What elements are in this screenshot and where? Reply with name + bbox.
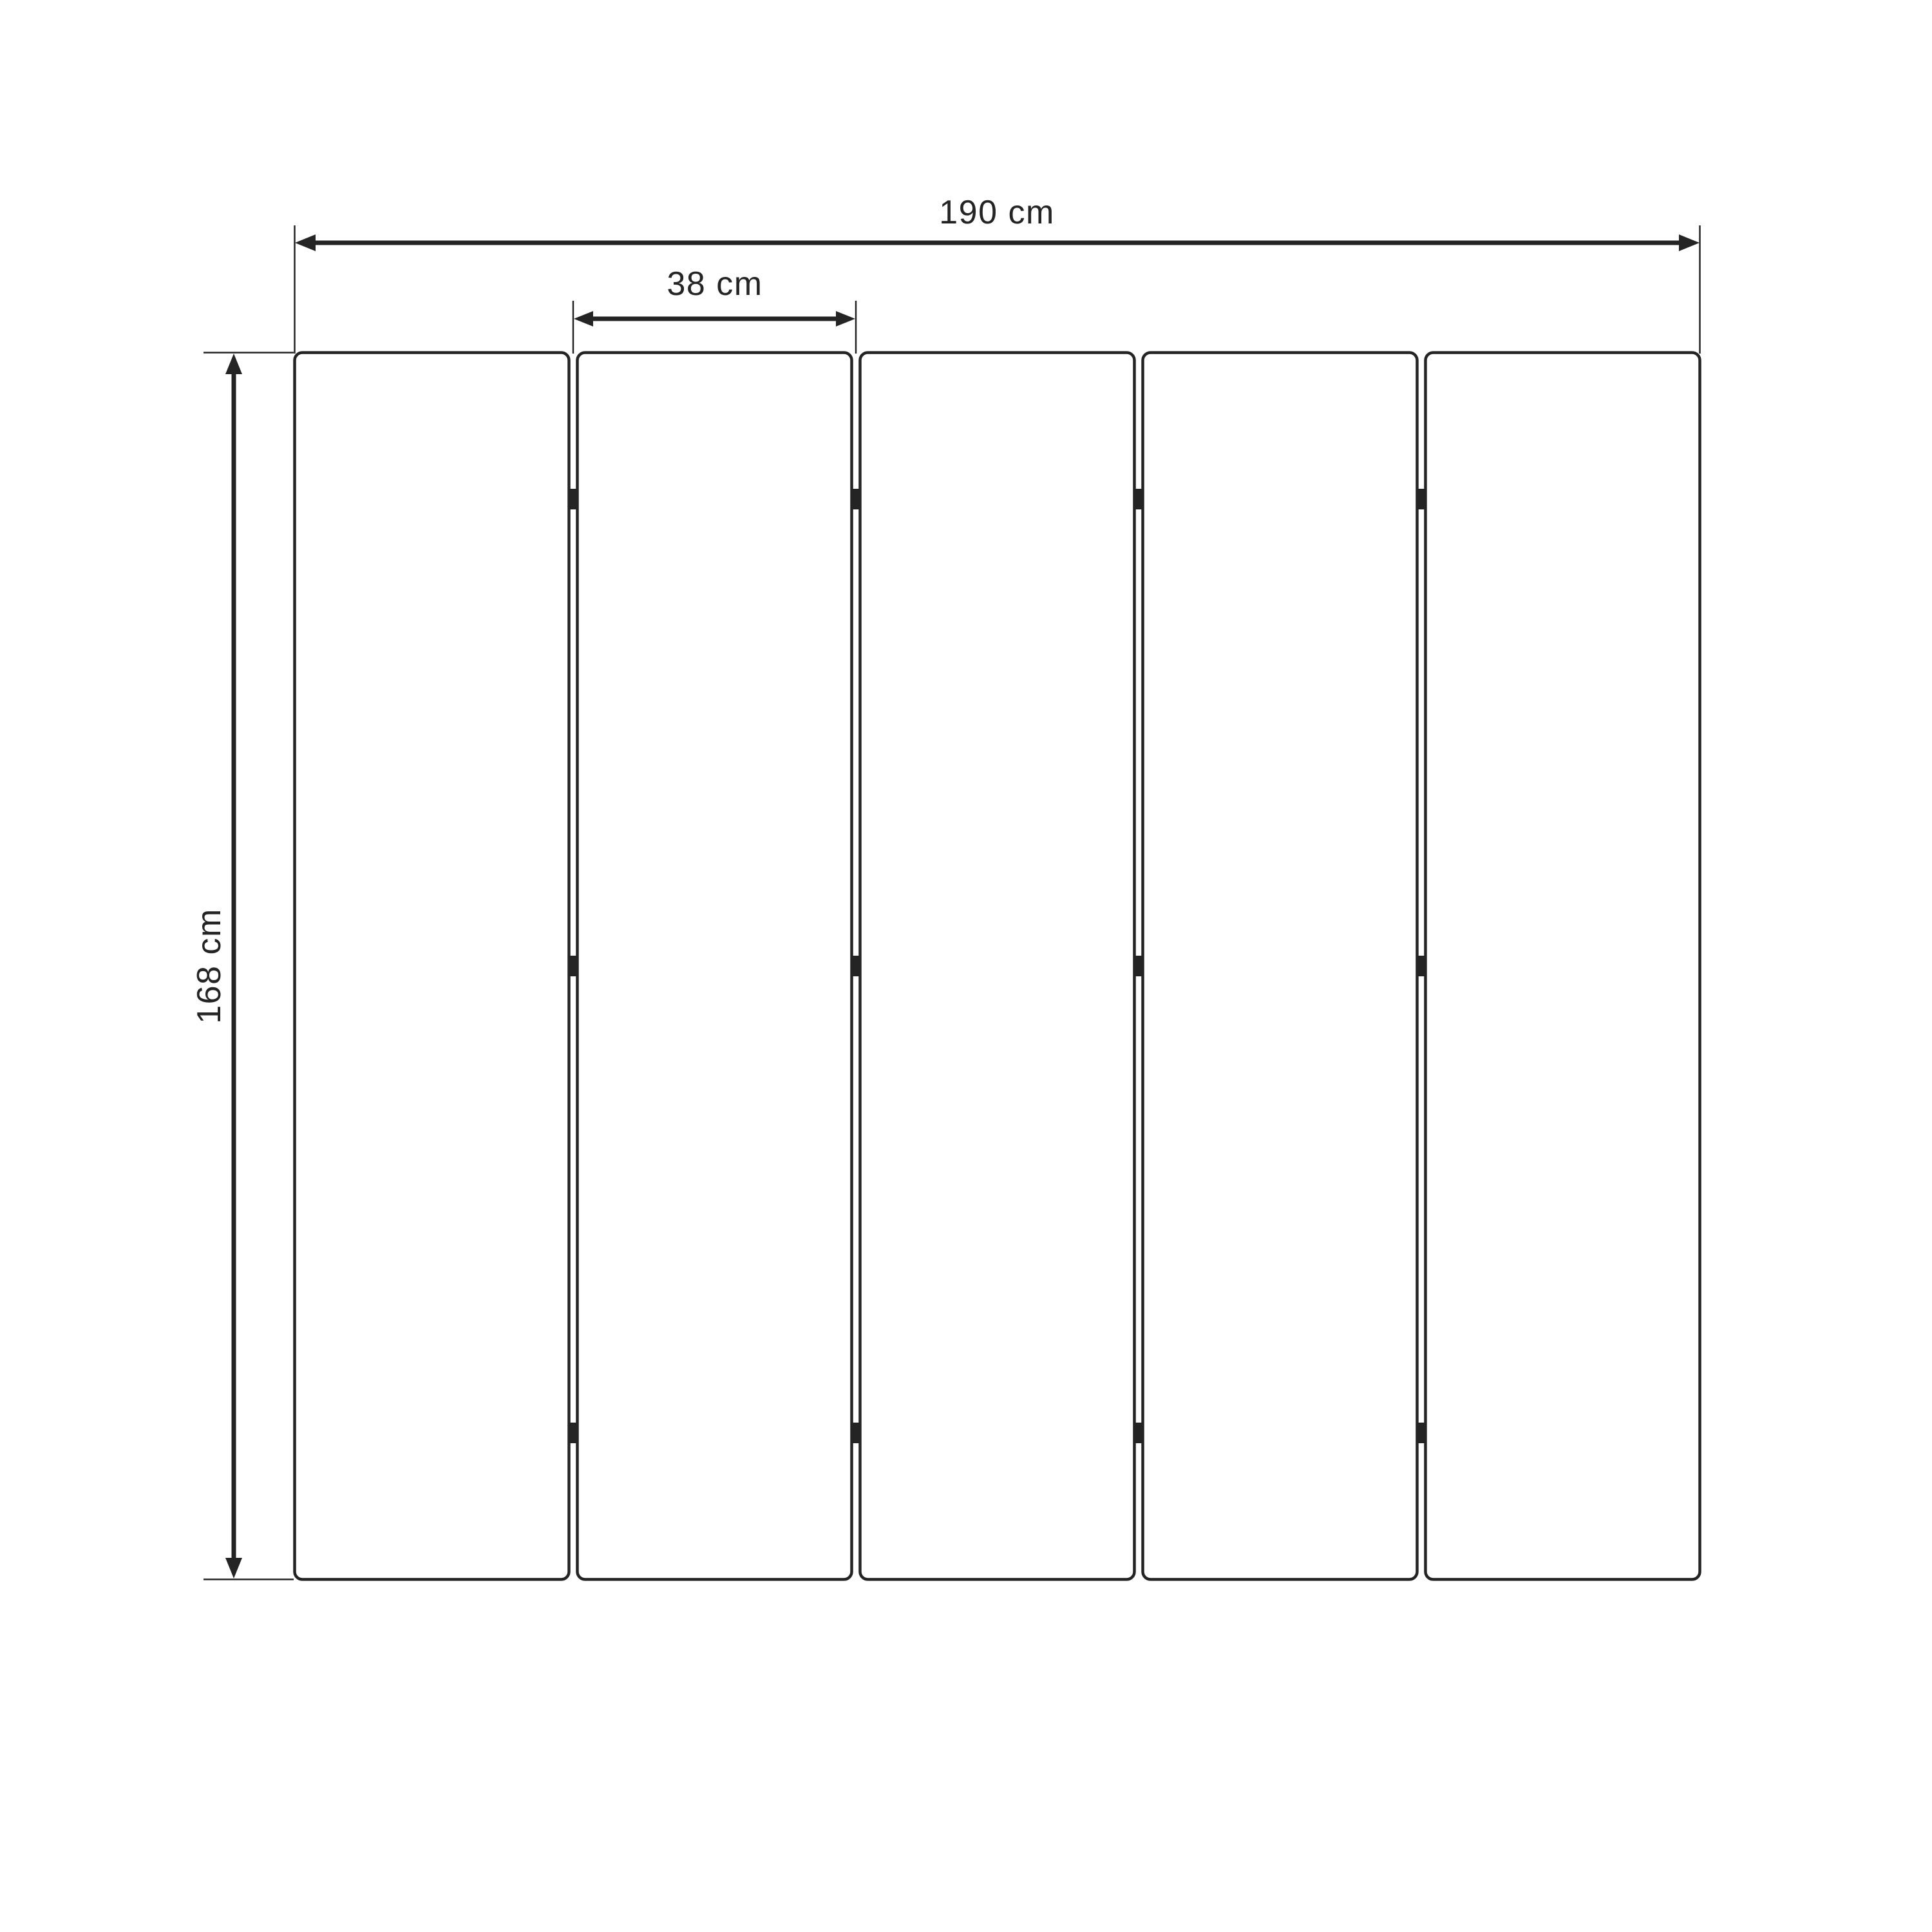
hinge-icon — [568, 956, 578, 976]
dimension-drawing-canvas: 190 cm 38 cm 168 cm — [0, 0, 1932, 1932]
panel-4 — [1143, 353, 1417, 1580]
total-width-label: 190 cm — [868, 194, 1126, 231]
hinge-icon — [1133, 1423, 1144, 1443]
dimension-total-width — [295, 225, 1700, 354]
hinge-icon — [851, 956, 861, 976]
arrow-up-icon — [225, 354, 242, 374]
panel-width-label: 38 cm — [586, 266, 844, 302]
panel-1 — [295, 353, 569, 1580]
height-label: 168 cm — [191, 837, 227, 1095]
hinge-icon — [1416, 489, 1426, 509]
arrow-down-icon — [225, 1558, 242, 1578]
hinge-icon — [1133, 489, 1144, 509]
hinge-icon — [568, 1423, 578, 1443]
hinge-icon — [851, 1423, 861, 1443]
panel-group — [295, 353, 1700, 1580]
hinge-icon — [568, 489, 578, 509]
hinge-icon — [1133, 956, 1144, 976]
panel-5 — [1426, 353, 1700, 1580]
arrow-right-icon — [836, 311, 855, 327]
arrow-left-icon — [295, 234, 316, 251]
dimension-panel-width — [573, 301, 856, 354]
arrow-right-icon — [1679, 234, 1700, 251]
arrow-left-icon — [574, 311, 593, 327]
panel-2 — [578, 353, 852, 1580]
folding-screen-diagram — [0, 0, 1932, 1932]
hinge-icon — [851, 489, 861, 509]
hinge-icon — [1416, 1423, 1426, 1443]
panel-3 — [860, 353, 1135, 1580]
hinge-icon — [1416, 956, 1426, 976]
